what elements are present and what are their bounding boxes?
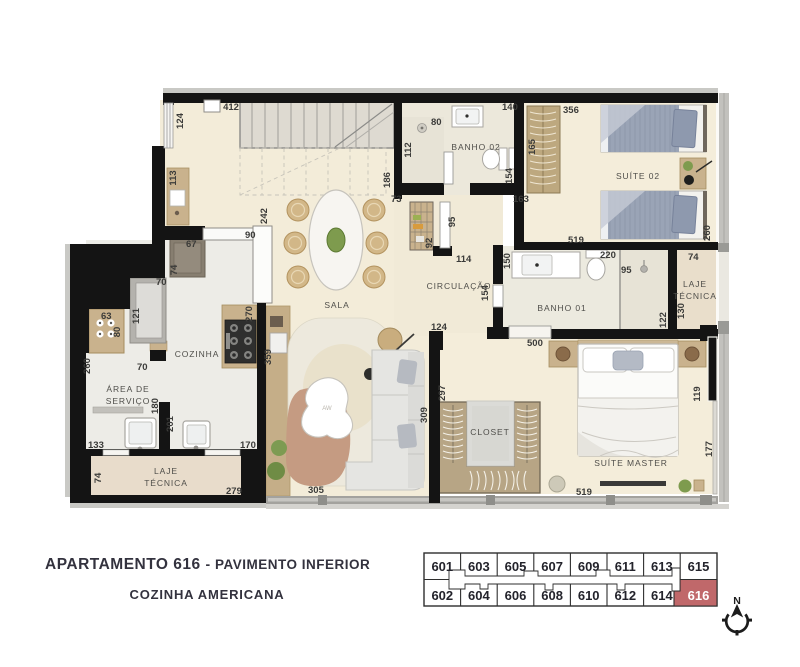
- svg-text:615: 615: [688, 559, 710, 574]
- svg-text:130: 130: [676, 303, 687, 319]
- svg-text:63: 63: [101, 311, 112, 322]
- svg-text:COZINHA AMERICANA: COZINHA AMERICANA: [130, 587, 285, 602]
- svg-text:170: 170: [240, 440, 256, 451]
- svg-text:114: 114: [456, 254, 472, 265]
- svg-text:COZINHA: COZINHA: [175, 349, 220, 359]
- svg-text:CLOSET: CLOSET: [470, 427, 509, 437]
- svg-text:73: 73: [391, 194, 402, 205]
- svg-text:APARTAMENTO 616 - PAVIMENTO IN: APARTAMENTO 616 - PAVIMENTO INFERIOR: [45, 556, 370, 573]
- svg-text:602: 602: [431, 588, 453, 603]
- svg-text:603: 603: [468, 559, 490, 574]
- svg-text:121: 121: [131, 307, 142, 324]
- svg-text:186: 186: [382, 172, 393, 188]
- svg-text:70: 70: [156, 277, 167, 288]
- svg-text:80: 80: [431, 117, 442, 128]
- svg-text:113: 113: [168, 170, 179, 185]
- svg-text:SALA: SALA: [324, 300, 349, 310]
- svg-text:610: 610: [578, 588, 600, 603]
- svg-text:74: 74: [688, 252, 699, 263]
- svg-text:74: 74: [93, 472, 104, 483]
- svg-text:616: 616: [688, 588, 710, 603]
- svg-text:92: 92: [424, 238, 435, 249]
- svg-text:124: 124: [431, 322, 448, 333]
- svg-text:122: 122: [658, 312, 669, 328]
- svg-text:95: 95: [621, 265, 632, 276]
- svg-text:LAJE: LAJE: [154, 466, 178, 476]
- svg-text:119: 119: [692, 386, 703, 401]
- svg-text:SUÍTE 02: SUÍTE 02: [616, 171, 660, 181]
- svg-text:260: 260: [702, 225, 713, 241]
- svg-text:242: 242: [259, 208, 270, 224]
- svg-text:150: 150: [502, 253, 513, 269]
- svg-text:305: 305: [308, 485, 325, 496]
- svg-text:519: 519: [576, 487, 592, 498]
- svg-text:ÁREA DE: ÁREA DE: [106, 384, 149, 394]
- svg-text:140: 140: [502, 102, 518, 113]
- svg-text:279: 279: [226, 486, 242, 497]
- svg-text:90: 90: [245, 230, 256, 241]
- svg-text:CIRCULAÇÃO: CIRCULAÇÃO: [427, 281, 492, 291]
- svg-text:604: 604: [468, 588, 490, 603]
- svg-text:BANHO 01: BANHO 01: [537, 303, 586, 313]
- svg-text:309: 309: [419, 407, 430, 423]
- svg-text:412: 412: [223, 102, 239, 113]
- svg-text:180: 180: [150, 398, 161, 414]
- svg-text:260: 260: [82, 358, 93, 374]
- svg-text:133: 133: [88, 440, 104, 451]
- svg-text:TÉCNICA: TÉCNICA: [144, 478, 188, 488]
- svg-text:163: 163: [513, 194, 529, 205]
- svg-text:500: 500: [527, 338, 543, 349]
- svg-text:AW: AW: [322, 406, 332, 412]
- svg-text:601: 601: [431, 559, 453, 574]
- svg-text:297: 297: [437, 385, 448, 401]
- svg-text:165: 165: [527, 138, 538, 155]
- svg-text:SUÍTE MASTER: SUÍTE MASTER: [594, 458, 668, 468]
- svg-text:177: 177: [704, 441, 715, 457]
- svg-text:519: 519: [568, 235, 584, 246]
- svg-text:154: 154: [504, 167, 515, 184]
- svg-text:201: 201: [165, 415, 176, 432]
- svg-text:74: 74: [169, 264, 180, 275]
- svg-text:614: 614: [651, 588, 673, 603]
- svg-text:359: 359: [263, 349, 274, 365]
- svg-text:124: 124: [175, 112, 186, 129]
- svg-text:607: 607: [541, 559, 563, 574]
- svg-text:270: 270: [244, 306, 255, 322]
- svg-text:606: 606: [505, 588, 527, 603]
- svg-text:LAJE: LAJE: [683, 279, 707, 289]
- svg-text:TÉCNICA: TÉCNICA: [673, 291, 717, 301]
- svg-text:95: 95: [447, 216, 458, 227]
- svg-text:220: 220: [600, 250, 616, 261]
- svg-text:613: 613: [651, 559, 673, 574]
- svg-text:70: 70: [137, 362, 148, 373]
- svg-text:611: 611: [615, 559, 636, 574]
- svg-text:80: 80: [112, 327, 123, 338]
- svg-text:67: 67: [186, 239, 197, 250]
- svg-text:609: 609: [578, 559, 600, 574]
- svg-text:608: 608: [541, 588, 563, 603]
- svg-text:BANHO 02: BANHO 02: [451, 142, 500, 152]
- svg-text:SERVIÇO: SERVIÇO: [106, 396, 150, 406]
- svg-text:612: 612: [614, 588, 636, 603]
- svg-text:605: 605: [505, 559, 527, 574]
- svg-text:356: 356: [563, 105, 579, 116]
- svg-text:112: 112: [403, 142, 414, 157]
